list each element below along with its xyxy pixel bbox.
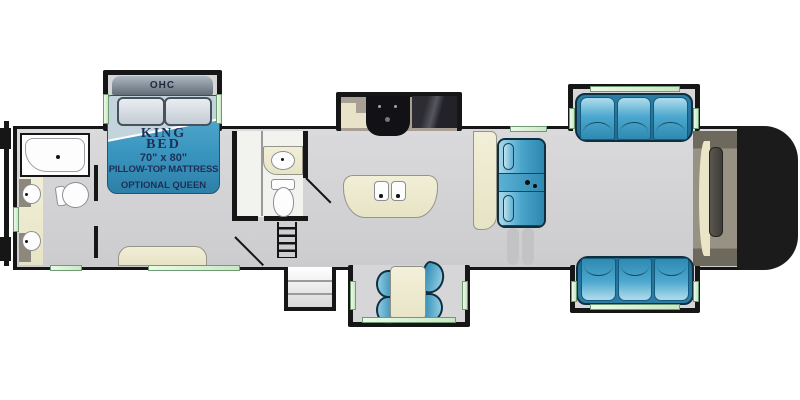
bed-size-label: 70" x 80"	[108, 152, 219, 164]
island-sink-right	[391, 181, 406, 201]
living-top-window	[510, 126, 547, 132]
vanity-faucet-bottom	[25, 240, 28, 243]
sofa-top-window	[590, 86, 680, 92]
dinette-window-right	[462, 281, 468, 310]
front-cap	[737, 126, 798, 270]
cup-holder	[525, 180, 530, 185]
sofa-bottom	[576, 256, 694, 305]
half-bath-partition	[261, 131, 263, 216]
bed-label-bed: BED	[108, 139, 219, 150]
side-cabinet	[473, 131, 497, 230]
theater-seating	[497, 138, 546, 228]
bed-slide-window-left	[103, 94, 109, 124]
pillow-left	[117, 97, 165, 126]
entry-steps	[284, 267, 336, 311]
pillow-right	[164, 97, 212, 126]
sofa-cushion	[618, 258, 653, 301]
vanity-faucet-top	[25, 193, 28, 196]
ohc-label: OHC	[150, 80, 175, 91]
theater-seat	[499, 192, 544, 226]
sofa-top	[575, 93, 693, 142]
sofa-cushion	[653, 97, 688, 140]
bed-mattress-label: PILLOW-TOP MATTRESS	[108, 164, 219, 175]
front-tv	[709, 147, 723, 237]
range-cooktop	[366, 96, 410, 136]
floor-runner-b	[522, 228, 534, 265]
sofa-bottom-window-right	[693, 281, 699, 302]
sofa-cushion	[580, 97, 615, 140]
half-bath-right-wall	[303, 131, 308, 178]
sofa-cushion	[617, 97, 652, 140]
bath-divider-wall-lower	[94, 226, 98, 258]
island-sink-left	[374, 181, 389, 201]
theater-seat	[499, 140, 544, 174]
bedroom-bottom-window	[50, 265, 82, 271]
bedroom-stairs	[277, 222, 297, 258]
dinette-window-left	[350, 281, 356, 310]
shower	[20, 133, 90, 177]
half-bath-bottom-wall-a	[232, 216, 258, 221]
bed-optional-label: OPTIONAL QUEEN	[108, 180, 219, 191]
sofa-bottom-window	[590, 304, 680, 310]
sofa-cushion	[654, 258, 689, 301]
cup-holder	[533, 184, 537, 188]
bedroom-dresser	[118, 246, 207, 266]
half-bath-faucet	[281, 158, 284, 161]
overhead-cabinet: OHC	[112, 76, 213, 95]
floor-runner-a	[507, 228, 519, 265]
sofa-cushion	[581, 258, 616, 301]
bed-slide-window-right	[216, 94, 222, 124]
rear-bumper-bottom	[0, 237, 11, 261]
sofa-top-window-left	[569, 108, 575, 129]
rear-side-window	[13, 207, 19, 232]
sofa-bottom-window-left	[571, 281, 577, 302]
bath-divider-wall-upper	[94, 165, 98, 201]
rear-bumper-top	[0, 128, 11, 149]
sofa-top-window-right	[693, 108, 699, 129]
rv-floorplan: OHC KING BED 70" x 80" PILLOW-TOP MATTRE…	[0, 0, 800, 400]
theater-console	[499, 174, 544, 192]
hall-bottom-window	[148, 265, 240, 271]
shower-drain	[56, 155, 60, 159]
refrigerator	[412, 96, 457, 128]
half-bath-left-wall	[232, 131, 237, 221]
dinette-table	[390, 266, 426, 320]
half-bath-toilet-bowl	[273, 187, 294, 217]
kitchen-counter-step-high	[341, 103, 356, 128]
dinette-window-bottom	[362, 317, 456, 323]
island-faucet-right	[396, 194, 400, 198]
island-faucet-left	[379, 194, 383, 198]
